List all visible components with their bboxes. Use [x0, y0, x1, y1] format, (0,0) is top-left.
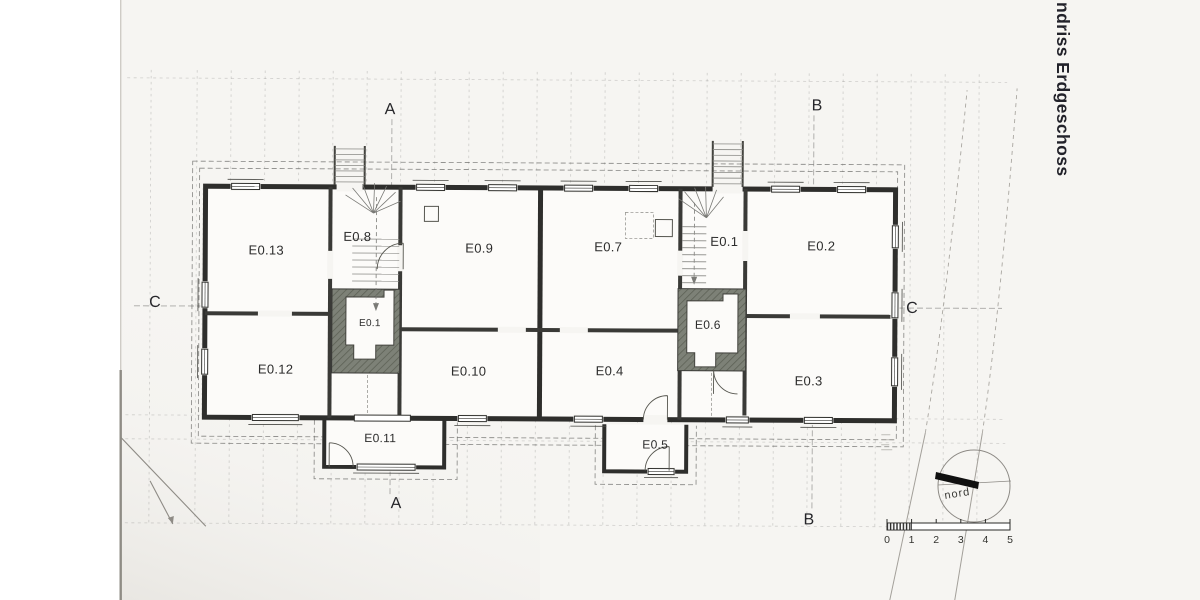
room-label-e013: E0.13 — [248, 242, 284, 257]
section-marker-b-top: B — [812, 97, 823, 114]
room-label-e011: E0.11 — [364, 431, 396, 445]
scanned-floor-plan: E0.13 E0.8 E0.9 E0.7 E0.1 E0.2 E0.12 E0.… — [0, 0, 1200, 600]
room-label-e06: E0.6 — [695, 318, 721, 332]
section-marker-a-bottom: A — [391, 495, 402, 512]
room-label-e09: E0.9 — [465, 241, 493, 256]
scale-number-4: 4 — [982, 534, 988, 546]
room-label-e04: E0.4 — [596, 363, 624, 378]
building-floor — [202, 184, 897, 423]
porch-threshold — [354, 415, 410, 421]
section-marker-c-right: C — [906, 300, 918, 317]
scale-number-3: 3 — [958, 534, 964, 546]
scale-bar-hatched-segment — [887, 523, 912, 530]
room-label-e01-hall: E0.1 — [710, 234, 738, 249]
section-marker-b-bottom: B — [803, 511, 814, 528]
drawing-title: ndriss Erdgeschoss — [1053, 2, 1073, 176]
section-marker-a-top: A — [385, 101, 396, 118]
room-label-e05: E0.5 — [642, 437, 668, 451]
room-label-e012: E0.12 — [258, 361, 294, 376]
scale-number-0: 0 — [884, 534, 890, 546]
room-label-e02: E0.2 — [807, 238, 835, 253]
section-marker-c-left: C — [149, 294, 161, 311]
scale-number-5: 5 — [1007, 534, 1013, 546]
room-label-e07: E0.7 — [594, 239, 622, 254]
scale-number-1: 1 — [909, 534, 915, 546]
room-label-e08: E0.8 — [343, 229, 371, 244]
room-label-e03: E0.3 — [795, 373, 823, 388]
scale-number-2: 2 — [933, 534, 939, 546]
room-label-e01-small: E0.1 — [359, 318, 381, 329]
room-label-e010: E0.10 — [451, 363, 487, 378]
